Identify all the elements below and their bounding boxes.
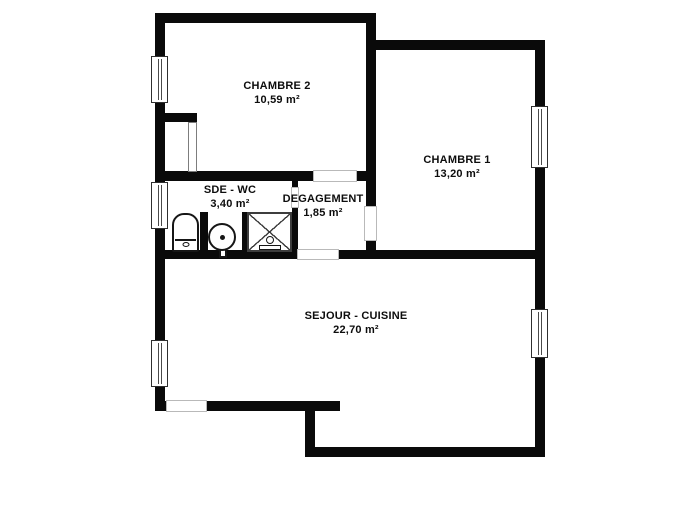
- room-area: 10,59 m²: [243, 93, 310, 107]
- wall: [165, 113, 197, 122]
- room-label-chambre-1: CHAMBRE 1 13,20 m²: [423, 153, 490, 181]
- wall: [155, 13, 376, 23]
- wall: [338, 250, 544, 259]
- door-opening: [166, 400, 207, 412]
- window-glass: [158, 59, 162, 100]
- door-opening: [313, 170, 357, 182]
- room-area: 13,20 m²: [423, 167, 490, 181]
- toilet-flush-button: [182, 242, 189, 247]
- room-name: CHAMBRE 1: [423, 153, 490, 167]
- room-name: SEJOUR - CUISINE: [305, 309, 408, 323]
- door-opening: [297, 249, 339, 260]
- room-label-chambre-2: CHAMBRE 2 10,59 m²: [243, 79, 310, 107]
- window-icon: [531, 309, 548, 358]
- toilet-tank-line: [175, 239, 196, 241]
- floor-plan: CHAMBRE 2 10,59 m² CHAMBRE 1 13,20 m² SD…: [0, 0, 700, 525]
- room-area: 22,70 m²: [305, 323, 408, 337]
- wall: [155, 171, 313, 181]
- window-glass: [158, 185, 162, 226]
- room-label-sde-wc: SDE - WC 3,40 m²: [204, 183, 256, 211]
- door-opening: [364, 206, 377, 241]
- window-glass: [538, 109, 542, 165]
- door-leaf: [188, 122, 197, 172]
- room-label-degagement: DEGAGEMENT 1,85 m²: [283, 192, 364, 220]
- window-icon: [151, 56, 168, 103]
- wall: [366, 50, 376, 207]
- room-name: CHAMBRE 2: [243, 79, 310, 93]
- room-area: 3,40 m²: [204, 197, 256, 211]
- wall: [366, 40, 544, 50]
- window-icon: [151, 340, 168, 387]
- window-icon: [151, 182, 168, 229]
- wall: [292, 180, 298, 187]
- window-icon: [531, 106, 548, 168]
- wall: [200, 212, 208, 252]
- wall: [535, 40, 545, 457]
- toilet-icon: [172, 213, 199, 252]
- shower-mixer-icon: [259, 245, 281, 250]
- room-name: DEGAGEMENT: [283, 192, 364, 206]
- window-glass: [538, 312, 542, 355]
- room-label-sejour-cuisine: SEJOUR - CUISINE 22,70 m²: [305, 309, 408, 337]
- wall: [305, 447, 544, 457]
- room-name: SDE - WC: [204, 183, 256, 197]
- shower-head-icon: [266, 236, 274, 244]
- washbasin-drain: [220, 235, 225, 240]
- room-area: 1,85 m²: [283, 206, 364, 220]
- window-glass: [158, 343, 162, 384]
